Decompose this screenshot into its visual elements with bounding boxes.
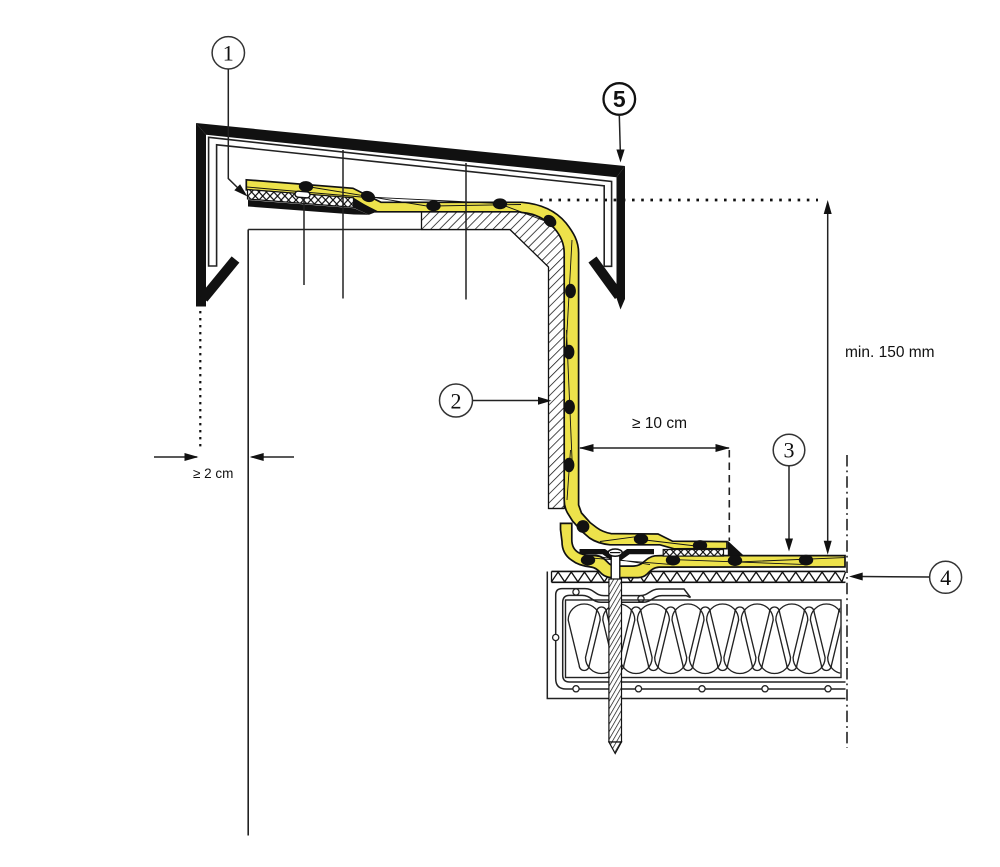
svg-text:4: 4 [940,565,951,590]
svg-text:5: 5 [613,86,626,112]
svg-text:≥ 10 cm: ≥ 10 cm [632,415,687,432]
svg-text:≥ 2 cm: ≥ 2 cm [193,466,233,481]
svg-text:3: 3 [784,438,795,463]
svg-text:2: 2 [451,388,462,413]
svg-text:1: 1 [223,41,234,66]
svg-text:min. 150 mm: min. 150 mm [845,344,935,361]
